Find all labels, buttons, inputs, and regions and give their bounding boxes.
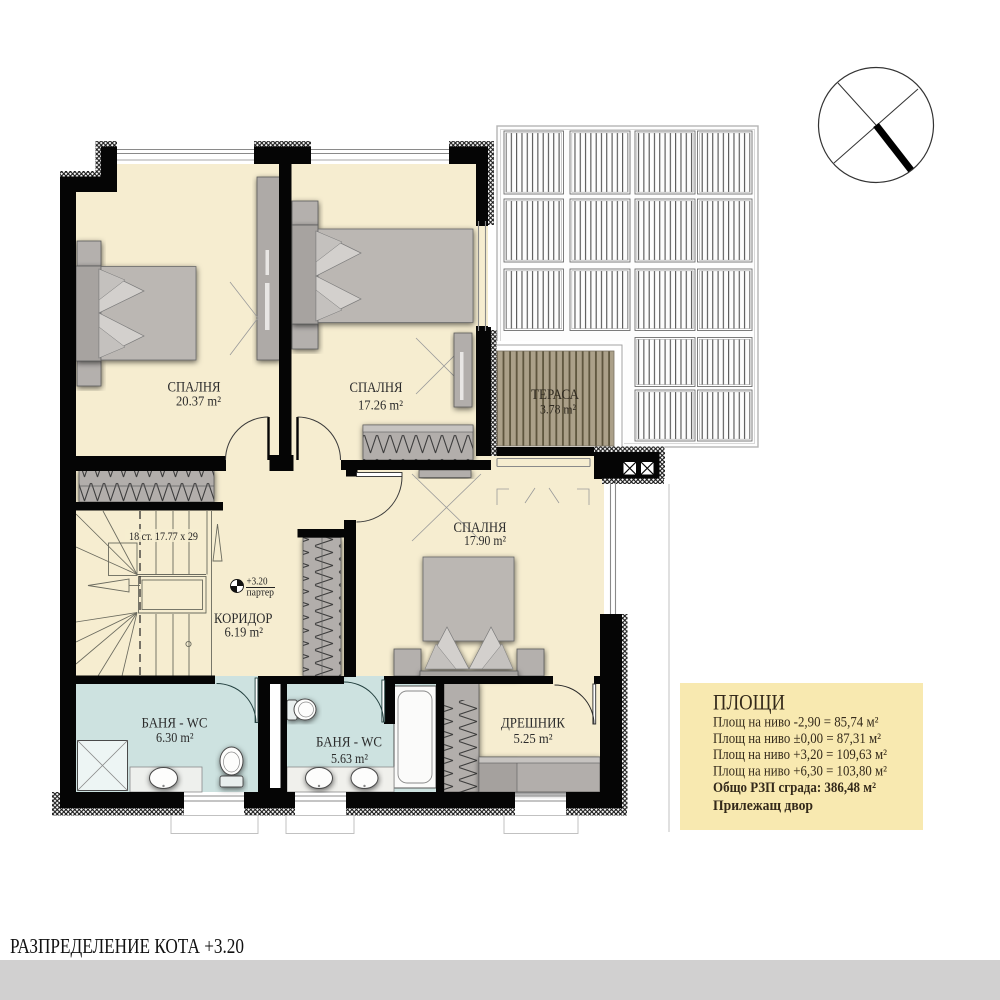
svg-text:+3.20: +3.20 bbox=[247, 577, 268, 588]
svg-text:Общо РЗП сграда: 386,48 м²: Общо РЗП сграда: 386,48 м² bbox=[713, 780, 876, 796]
svg-text:ДРЕШНИК: ДРЕШНИК bbox=[501, 716, 566, 732]
svg-text:5.63 m²: 5.63 m² bbox=[331, 751, 368, 766]
svg-text:18 ст. 17.77 x 29: 18 ст. 17.77 x 29 bbox=[129, 531, 198, 543]
svg-text:Площ на ниво +6,30 = 103,80 м²: Площ на ниво +6,30 = 103,80 м² bbox=[713, 764, 888, 780]
svg-text:6.30 m²: 6.30 m² bbox=[156, 730, 194, 745]
svg-text:ПЛОЩИ: ПЛОЩИ bbox=[713, 690, 785, 715]
svg-text:СПАЛНЯ: СПАЛНЯ bbox=[350, 380, 403, 396]
svg-text:6.19 m²: 6.19 m² bbox=[225, 625, 264, 640]
svg-text:Площ на ниво ±0,00 = 87,31 м²: Площ на ниво ±0,00 = 87,31 м² bbox=[713, 731, 882, 747]
svg-text:5.25 m²: 5.25 m² bbox=[514, 731, 553, 746]
svg-text:партер: партер bbox=[247, 588, 275, 599]
svg-text:Площ на ниво +3,20 = 109,63 м²: Площ на ниво +3,20 = 109,63 м² bbox=[713, 747, 888, 763]
svg-text:3.78 m²: 3.78 m² bbox=[540, 402, 576, 417]
svg-text:Прилежащ двор: Прилежащ двор bbox=[713, 798, 813, 814]
svg-text:Площ на ниво -2,90 = 85,74 м²: Площ на ниво -2,90 = 85,74 м² bbox=[713, 715, 879, 731]
svg-text:20.37 m²: 20.37 m² bbox=[176, 394, 221, 409]
svg-text:17.26 m²: 17.26 m² bbox=[358, 398, 403, 413]
svg-text:БАНЯ - WC: БАНЯ - WC bbox=[316, 735, 382, 751]
svg-text:17.90 m²: 17.90 m² bbox=[464, 533, 506, 548]
svg-text:РАЗПРЕДЕЛЕНИЕ КОТА +3.20: РАЗПРЕДЕЛЕНИЕ КОТА +3.20 bbox=[10, 934, 244, 958]
